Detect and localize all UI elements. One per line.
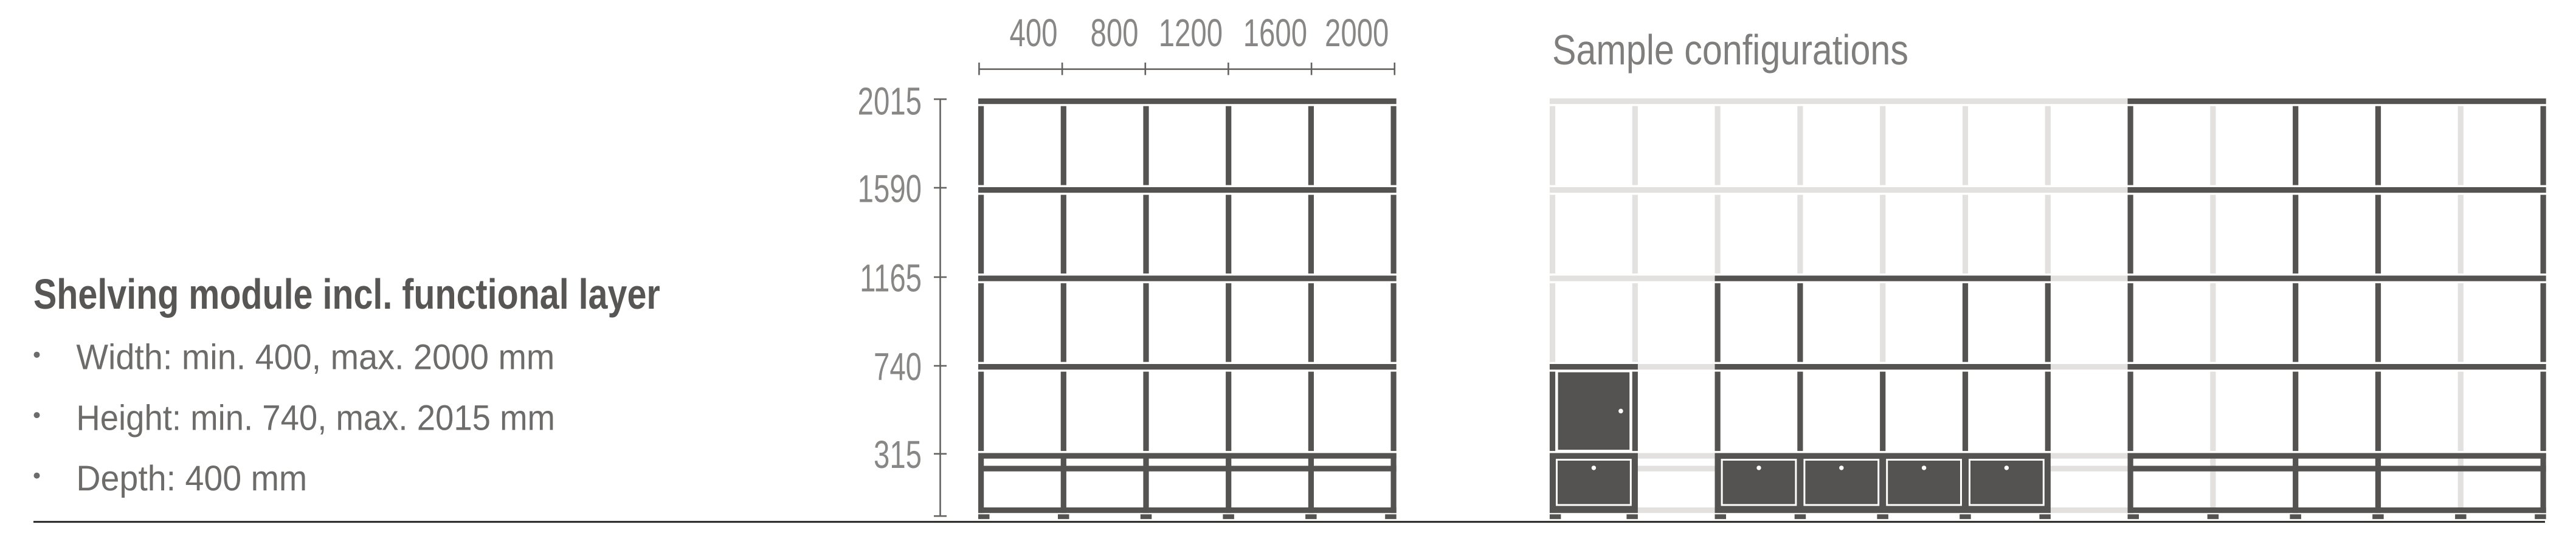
svg-text:Sample configurations: Sample configurations bbox=[1552, 26, 1908, 74]
svg-text:1165: 1165 bbox=[860, 256, 922, 300]
svg-text:Depth: 400 mm: Depth: 400 mm bbox=[76, 459, 307, 499]
svg-text:Width: min. 400, max. 2000 mm: Width: min. 400, max. 2000 mm bbox=[76, 337, 554, 377]
svg-text:1600: 1600 bbox=[1243, 11, 1307, 55]
svg-text:Height: min. 740, max. 2015 mm: Height: min. 740, max. 2015 mm bbox=[76, 398, 554, 438]
svg-text:Shelving module incl. function: Shelving module incl. functional layer bbox=[33, 270, 660, 318]
svg-text:315: 315 bbox=[874, 433, 922, 476]
svg-text:2000: 2000 bbox=[1325, 11, 1389, 55]
svg-text:740: 740 bbox=[874, 345, 922, 388]
svg-text:400: 400 bbox=[1010, 11, 1058, 55]
svg-text:1200: 1200 bbox=[1159, 11, 1223, 55]
svg-text:2015: 2015 bbox=[858, 79, 922, 123]
svg-text:1590: 1590 bbox=[858, 167, 922, 210]
svg-text:800: 800 bbox=[1091, 11, 1139, 55]
